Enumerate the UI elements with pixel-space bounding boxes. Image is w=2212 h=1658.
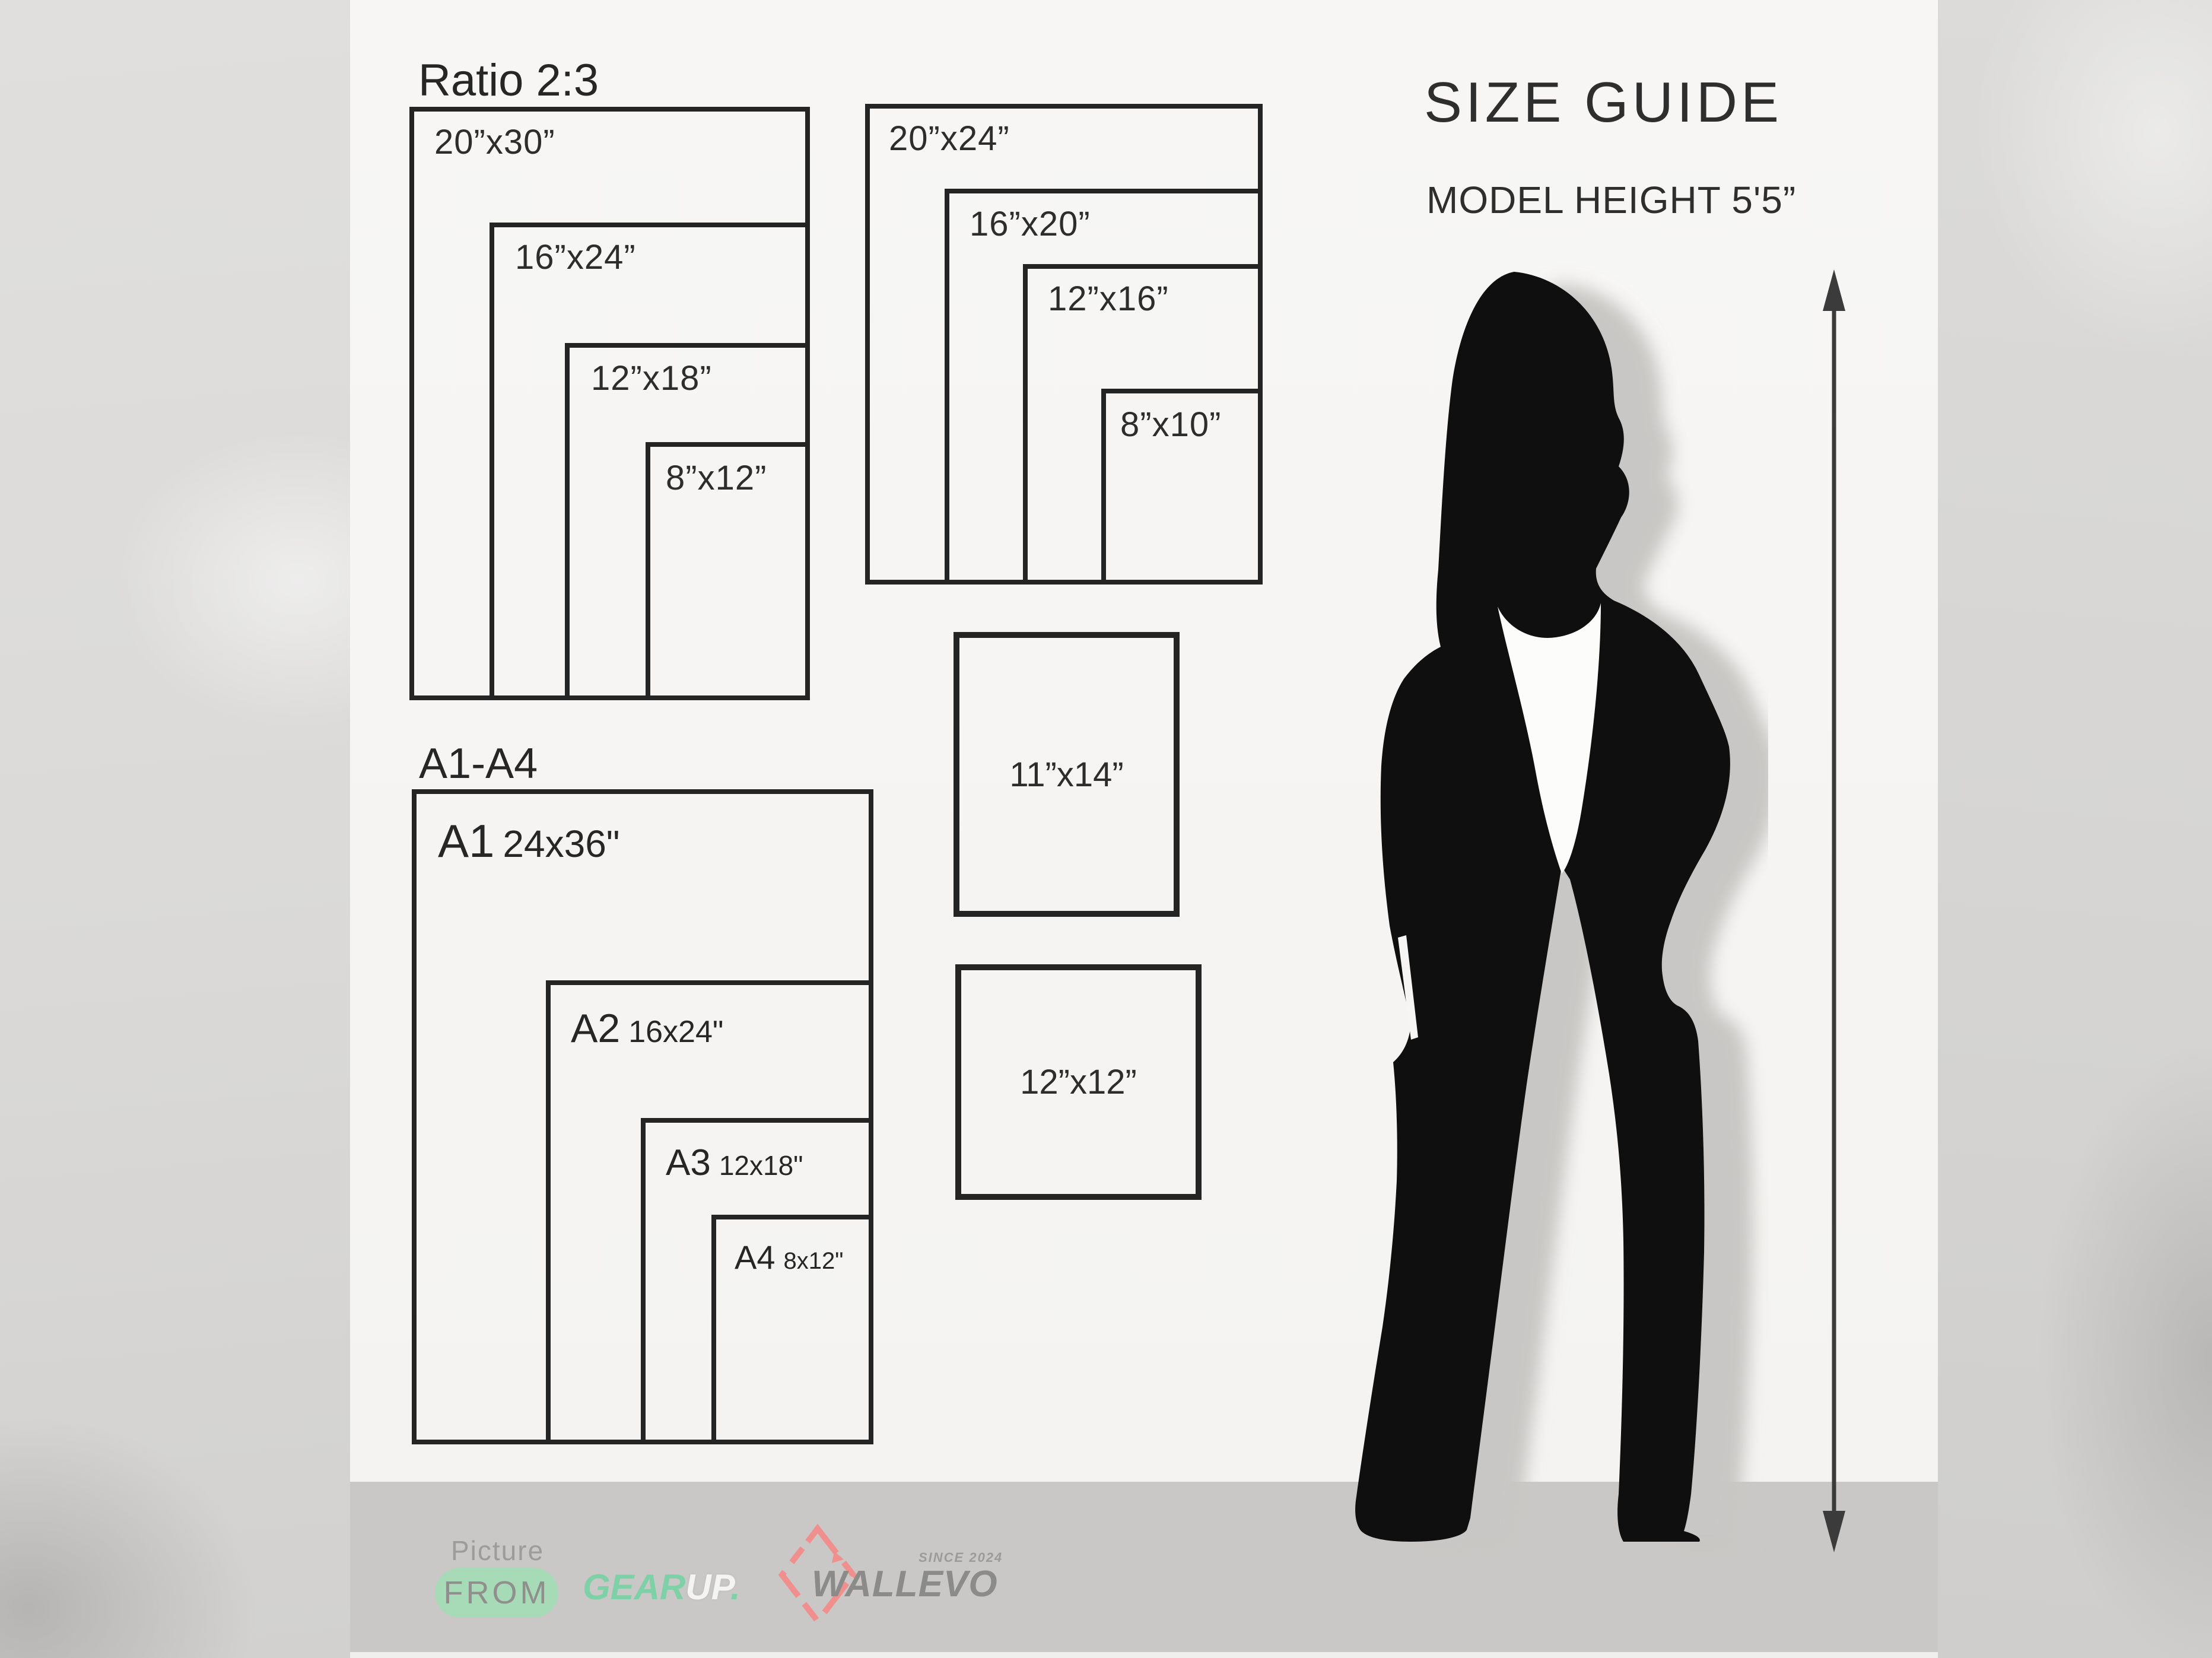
size-guide-graphic: Ratio 2:3 20”x30” 16”x24” 12”x18” 8”x12”… <box>0 0 2212 1658</box>
model-height-label: MODEL HEIGHT 5'5” <box>1426 178 1796 222</box>
arrow-up-icon <box>1823 269 1845 311</box>
size-label: 20”x24” <box>889 119 1010 158</box>
page-title: SIZE GUIDE <box>1424 70 1782 135</box>
a4-code: A4 <box>735 1238 776 1276</box>
size-label: 12”x18” <box>591 358 712 398</box>
size-label: 8”x10” <box>1120 405 1221 444</box>
size-label: 11”x14” <box>1009 755 1123 795</box>
model-silhouette <box>1293 255 1768 1555</box>
a3-code: A3 <box>666 1142 711 1184</box>
right-marble-margin <box>1938 0 2212 1658</box>
size-label: 12”x16” <box>1048 279 1169 319</box>
size-label: 20”x30” <box>434 122 555 162</box>
size-label: 16”x24” <box>515 237 636 277</box>
a2-code: A2 <box>571 1005 620 1052</box>
a1-code: A1 <box>438 814 494 868</box>
from-label: FROM <box>444 1574 550 1611</box>
wallevo-logo-text: WALLEVO <box>812 1563 998 1605</box>
a3-size: 12x18" <box>719 1149 803 1181</box>
a1-label: A1 24x36" <box>438 814 620 868</box>
height-arrow <box>1804 261 1864 1561</box>
size-label: 16”x20” <box>970 204 1091 244</box>
a4-label: A4 8x12" <box>735 1238 843 1276</box>
a-group-title: A1-A4 <box>419 739 538 788</box>
a4-size: 8x12" <box>784 1248 844 1275</box>
size-label: 12”x12” <box>1020 1062 1137 1102</box>
a2-label: A2 16x24" <box>571 1005 723 1052</box>
gearup-logo: GEARUP. <box>583 1567 740 1608</box>
arrow-down-icon <box>1823 1511 1845 1552</box>
silhouette-body <box>1355 272 1730 1542</box>
left-marble-margin <box>0 0 350 1658</box>
a2-size: 16x24" <box>628 1014 723 1050</box>
size-label: 8”x12” <box>666 458 767 498</box>
picture-label: Picture <box>451 1535 544 1567</box>
dot-text: . <box>730 1567 740 1607</box>
a3-label: A3 12x18" <box>666 1142 803 1184</box>
footer-bottom-strip <box>350 1652 1938 1658</box>
up-text: UP <box>685 1567 730 1607</box>
gear-text: GEAR <box>583 1567 685 1607</box>
a1-size: 24x36" <box>503 822 619 866</box>
ratio-group-title: Ratio 2:3 <box>418 55 599 106</box>
size-box-12x12: 12”x12” <box>955 964 1202 1200</box>
size-box-11x14: 11”x14” <box>954 632 1180 917</box>
from-badge: FROM <box>435 1568 558 1618</box>
